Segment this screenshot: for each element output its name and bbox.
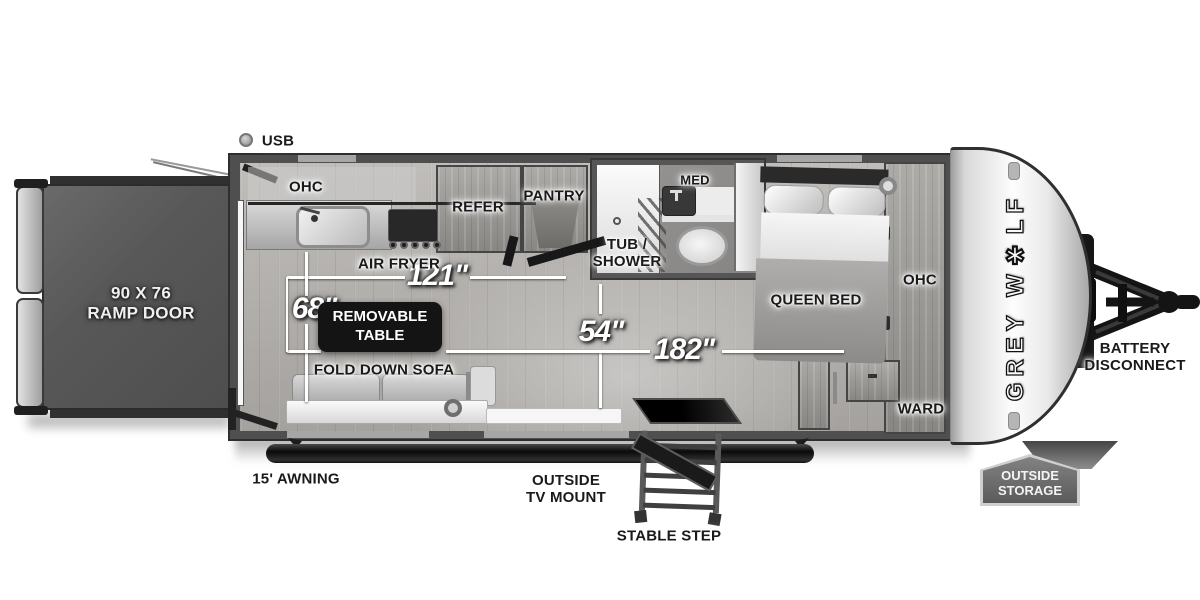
outside-tv bbox=[632, 398, 742, 424]
dim-line-182-c bbox=[722, 350, 844, 353]
queen-bed-label: QUEEN BED bbox=[771, 291, 862, 308]
dim-line-54-top bbox=[599, 284, 602, 314]
burner-knob bbox=[422, 241, 430, 249]
bed-sheet bbox=[760, 212, 889, 265]
refer-label: REFER bbox=[452, 198, 504, 215]
step-foot bbox=[634, 510, 647, 523]
bath-counter-top bbox=[694, 187, 736, 215]
rear-bumper-bottom bbox=[16, 298, 44, 408]
dim-line-182-b bbox=[446, 350, 650, 353]
pillow bbox=[827, 186, 886, 218]
dim-line-68-top bbox=[305, 252, 308, 296]
tub-drain bbox=[613, 217, 621, 225]
bedroom-speaker bbox=[879, 177, 897, 195]
burner-knob bbox=[411, 241, 419, 249]
brand-logo: GREY W✱LF bbox=[1004, 193, 1028, 401]
ohc-kitchen-label: OHC bbox=[289, 178, 323, 195]
tub-shower-label: TUB / SHOWER bbox=[593, 236, 662, 271]
brand-logo-wrap: GREY W✱LF bbox=[988, 172, 1044, 422]
med-cabinet-label: MED bbox=[680, 174, 710, 189]
rear-bumper-top bbox=[16, 186, 44, 294]
a-frame-arm-inner bbox=[1096, 272, 1162, 300]
removable-table-callout: REMOVABLE TABLE bbox=[318, 302, 442, 352]
stable-step-group bbox=[632, 428, 731, 531]
dim-line-68-bottom bbox=[305, 324, 308, 402]
coupler-stub bbox=[1174, 295, 1200, 309]
battery-disconnect-label: BATTERY DISCONNECT bbox=[1084, 340, 1185, 375]
sink-drain bbox=[311, 215, 318, 222]
jack-pin bbox=[1118, 284, 1127, 322]
window-bottom-sofa bbox=[287, 431, 429, 438]
window-bottom-entry bbox=[484, 431, 629, 438]
toilet bbox=[676, 226, 728, 266]
bumper-end-cap-top bbox=[14, 179, 48, 188]
ohc-bedroom-label: OHC bbox=[903, 271, 937, 288]
burner-knob bbox=[433, 241, 441, 249]
air-fryer-cooktop bbox=[388, 209, 438, 242]
dim-line-121-right bbox=[470, 276, 566, 279]
bath-faucet-v bbox=[675, 190, 678, 201]
awning-roller-tube bbox=[266, 444, 814, 463]
dim-line-182-a bbox=[287, 350, 321, 353]
entry-mat bbox=[486, 408, 622, 424]
fold-down-sofa-label: FOLD DOWN SOFA bbox=[314, 361, 454, 378]
a-frame-arm-inner bbox=[1096, 304, 1162, 332]
window-top-galley bbox=[298, 155, 356, 162]
drawer-handle bbox=[868, 374, 877, 378]
awning-arm bbox=[833, 372, 837, 404]
bed-blanket bbox=[754, 258, 889, 363]
pantry-label: PANTRY bbox=[523, 187, 584, 204]
dim-line-54-bottom bbox=[599, 352, 602, 408]
window-top-bed bbox=[777, 155, 862, 162]
pillow bbox=[763, 184, 824, 216]
usb-label: USB bbox=[262, 132, 294, 149]
step-rung bbox=[643, 503, 715, 511]
sofa-knob bbox=[444, 399, 462, 417]
stable-step-label: STABLE STEP bbox=[617, 527, 721, 544]
headboard bbox=[760, 166, 888, 185]
bumper-end-cap-bottom bbox=[14, 406, 48, 415]
usb-port-dot bbox=[239, 133, 253, 147]
air-fryer-label: AIR FRYER bbox=[358, 255, 440, 272]
burner-knob bbox=[400, 241, 408, 249]
dim-interior-length: 182" bbox=[654, 335, 714, 365]
ward-label: WARD bbox=[898, 400, 945, 417]
queen-bed-group bbox=[751, 164, 896, 368]
awning-label: 15' AWNING bbox=[252, 470, 340, 487]
dim-tick-left bbox=[286, 277, 288, 352]
rear-opening-door-strip bbox=[237, 200, 244, 406]
outside-storage-label: OUTSIDE STORAGE bbox=[998, 468, 1062, 503]
rv-floorplan-diagram: USB 90 X 76 RAMP DOOR bbox=[0, 0, 1200, 600]
dim-aisle-width: 54" bbox=[579, 317, 624, 347]
step-foot bbox=[708, 512, 722, 526]
kitchen-sink bbox=[296, 206, 370, 248]
ramp-door-label: 90 X 76 RAMP DOOR bbox=[87, 283, 194, 322]
outside-tv-mount-label: OUTSIDE TV MOUNT bbox=[526, 472, 606, 507]
burner-knob bbox=[389, 241, 397, 249]
